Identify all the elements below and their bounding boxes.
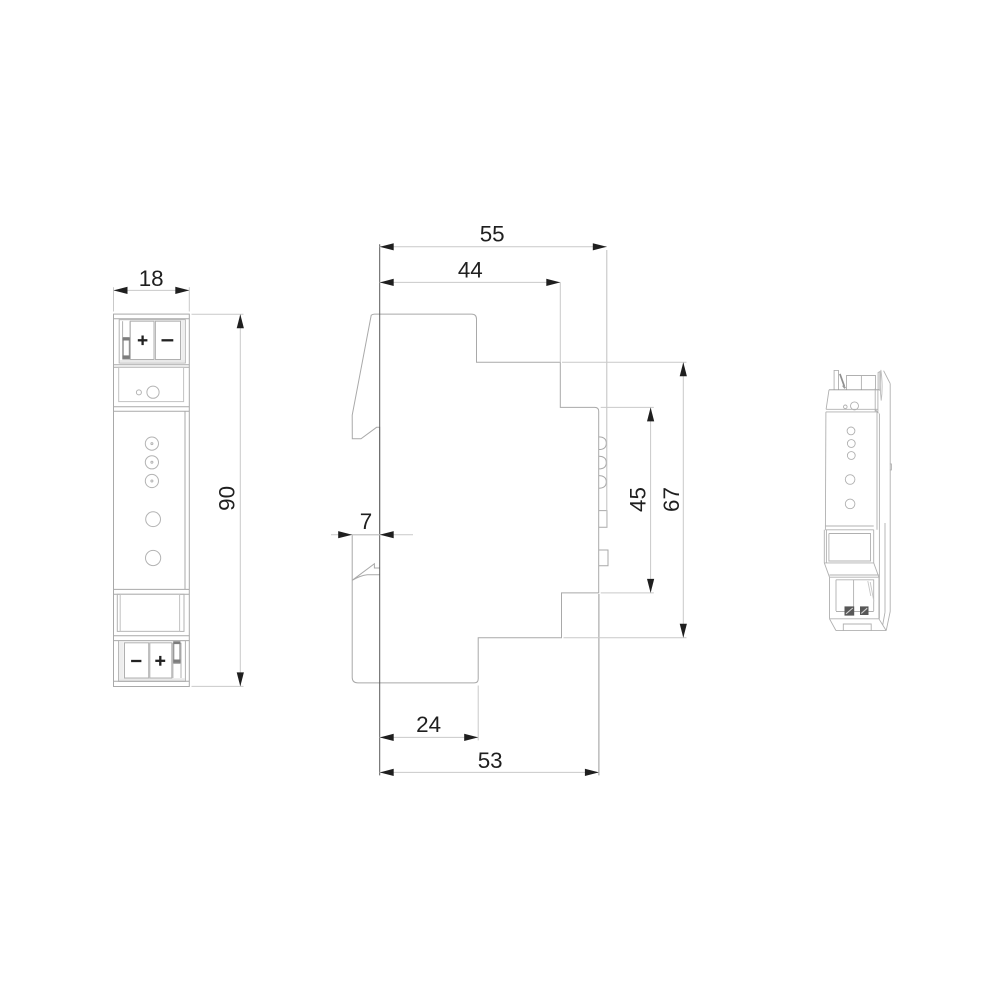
svg-text:67: 67 <box>659 487 684 512</box>
svg-text:24: 24 <box>416 712 441 737</box>
svg-text:55: 55 <box>480 221 505 246</box>
svg-text:44: 44 <box>458 258 483 283</box>
svg-text:45: 45 <box>625 487 650 512</box>
svg-text:7: 7 <box>360 509 372 534</box>
svg-text:90: 90 <box>214 486 239 511</box>
svg-text:53: 53 <box>478 748 503 773</box>
svg-text:18: 18 <box>139 266 164 291</box>
